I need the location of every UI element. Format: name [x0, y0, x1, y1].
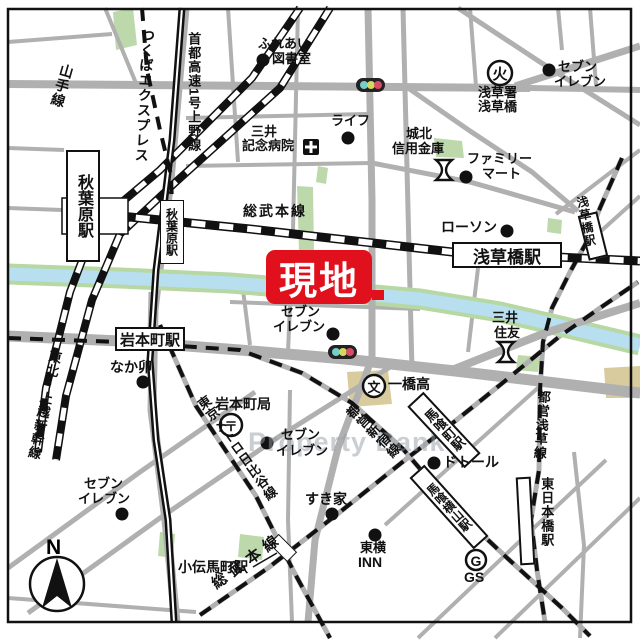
poi-seven-top-right-line1: セブン: [558, 60, 597, 74]
poi-seven-central-line2: イレブン: [273, 320, 325, 334]
compass-icon: [30, 557, 84, 611]
poi-family-mart-line2: マート: [482, 167, 521, 181]
svg-text:文: 文: [367, 380, 381, 395]
station-label-kodenmacho: 小伝馬町駅: [178, 560, 248, 575]
gas-station-icon: G: [466, 550, 486, 570]
poi-mitsui-sumitomo-line1: 三井: [492, 311, 518, 325]
poi-sukiya: すき家: [305, 492, 347, 507]
life-dot: [342, 132, 355, 145]
poi-lawson: ローソン: [441, 220, 497, 235]
poi-seven-central-line1: セブン: [281, 305, 320, 319]
bank-icon-johoku: [436, 160, 452, 180]
poi-johoku-shinkin-line1: 城北: [406, 127, 432, 141]
poi-dotoru: ドトール: [443, 455, 499, 470]
poi-fureai-line1: ふれあい: [258, 37, 310, 51]
seven-central-dot: [327, 328, 340, 341]
poi-nakau: なか卯: [110, 360, 152, 375]
line-label-shuto-expressway: 首都高速1号上野線: [186, 32, 200, 152]
dotoru-dot: [428, 457, 441, 470]
seven-bottom-left-dot: [116, 508, 129, 521]
site-callout-label: 現地: [279, 250, 359, 305]
poi-fureai-line2: 図書室: [272, 52, 311, 66]
station-box-asakusabashi-jr: 浅草橋駅: [452, 242, 562, 268]
site-square: [372, 290, 384, 300]
fureai-dot: [257, 54, 270, 67]
traffic-light-icon-south: [328, 345, 357, 359]
poi-iwamoto-post: 岩本町局: [215, 397, 271, 412]
station-box-akihabara-jr: 秋葉原駅: [66, 150, 100, 262]
poi-seven-mid-line2: イレブン: [276, 444, 328, 458]
school-icon: 文: [363, 375, 385, 397]
poi-gs: GS: [464, 570, 484, 585]
nakau-dot: [137, 376, 150, 389]
poi-seven-top-right-line2: イレブン: [554, 75, 606, 89]
poi-seven-mid-line1: セブン: [281, 428, 320, 442]
svg-text:火: 火: [492, 66, 508, 83]
family-mart-dot: [460, 171, 473, 184]
lawson-dot: [501, 225, 514, 238]
map-canvas: 火 〒 文 G 秋葉原駅 秋葉原駅 岩本町駅 浅草橋駅 馬喰町駅 馬喰横山駅 山…: [0, 0, 640, 640]
sukiya-dot: [326, 508, 339, 521]
svg-text:G: G: [471, 553, 482, 569]
poi-asakusa-fire-line2: 浅草橋: [478, 100, 517, 114]
poi-mitsui-sumitomo-line2: 住友: [494, 326, 520, 340]
station-box-iwamotocho: 岩本町駅: [115, 327, 185, 351]
station-box-akihabara-tx: 秋葉原駅: [160, 200, 184, 264]
poi-family-mart-line1: ファミリー: [467, 152, 532, 166]
hospital-icon: [303, 139, 319, 155]
line-label-sobu-main: 総武本線: [243, 204, 307, 219]
poi-toyoko-inn-line2: INN: [358, 555, 382, 570]
site-callout: 現地: [266, 250, 372, 304]
poi-hitotsubashi: 一橋高: [388, 377, 430, 392]
poi-seven-bottom-left-line2: イレブン: [78, 492, 130, 506]
compass-north-label: N: [46, 536, 61, 560]
traffic-light-icon-north: [356, 78, 385, 92]
poi-seven-bottom-left-line1: セブン: [84, 477, 123, 491]
poi-mitsui-hospital-line2: 記念病院: [242, 139, 294, 153]
poi-johoku-shinkin-line2: 信用金庫: [392, 142, 444, 156]
station-label-higashi-nihonbashi: 東日本橋駅: [539, 477, 553, 547]
fire-station-icon: 火: [488, 61, 512, 85]
poi-life: ライフ: [331, 114, 370, 128]
